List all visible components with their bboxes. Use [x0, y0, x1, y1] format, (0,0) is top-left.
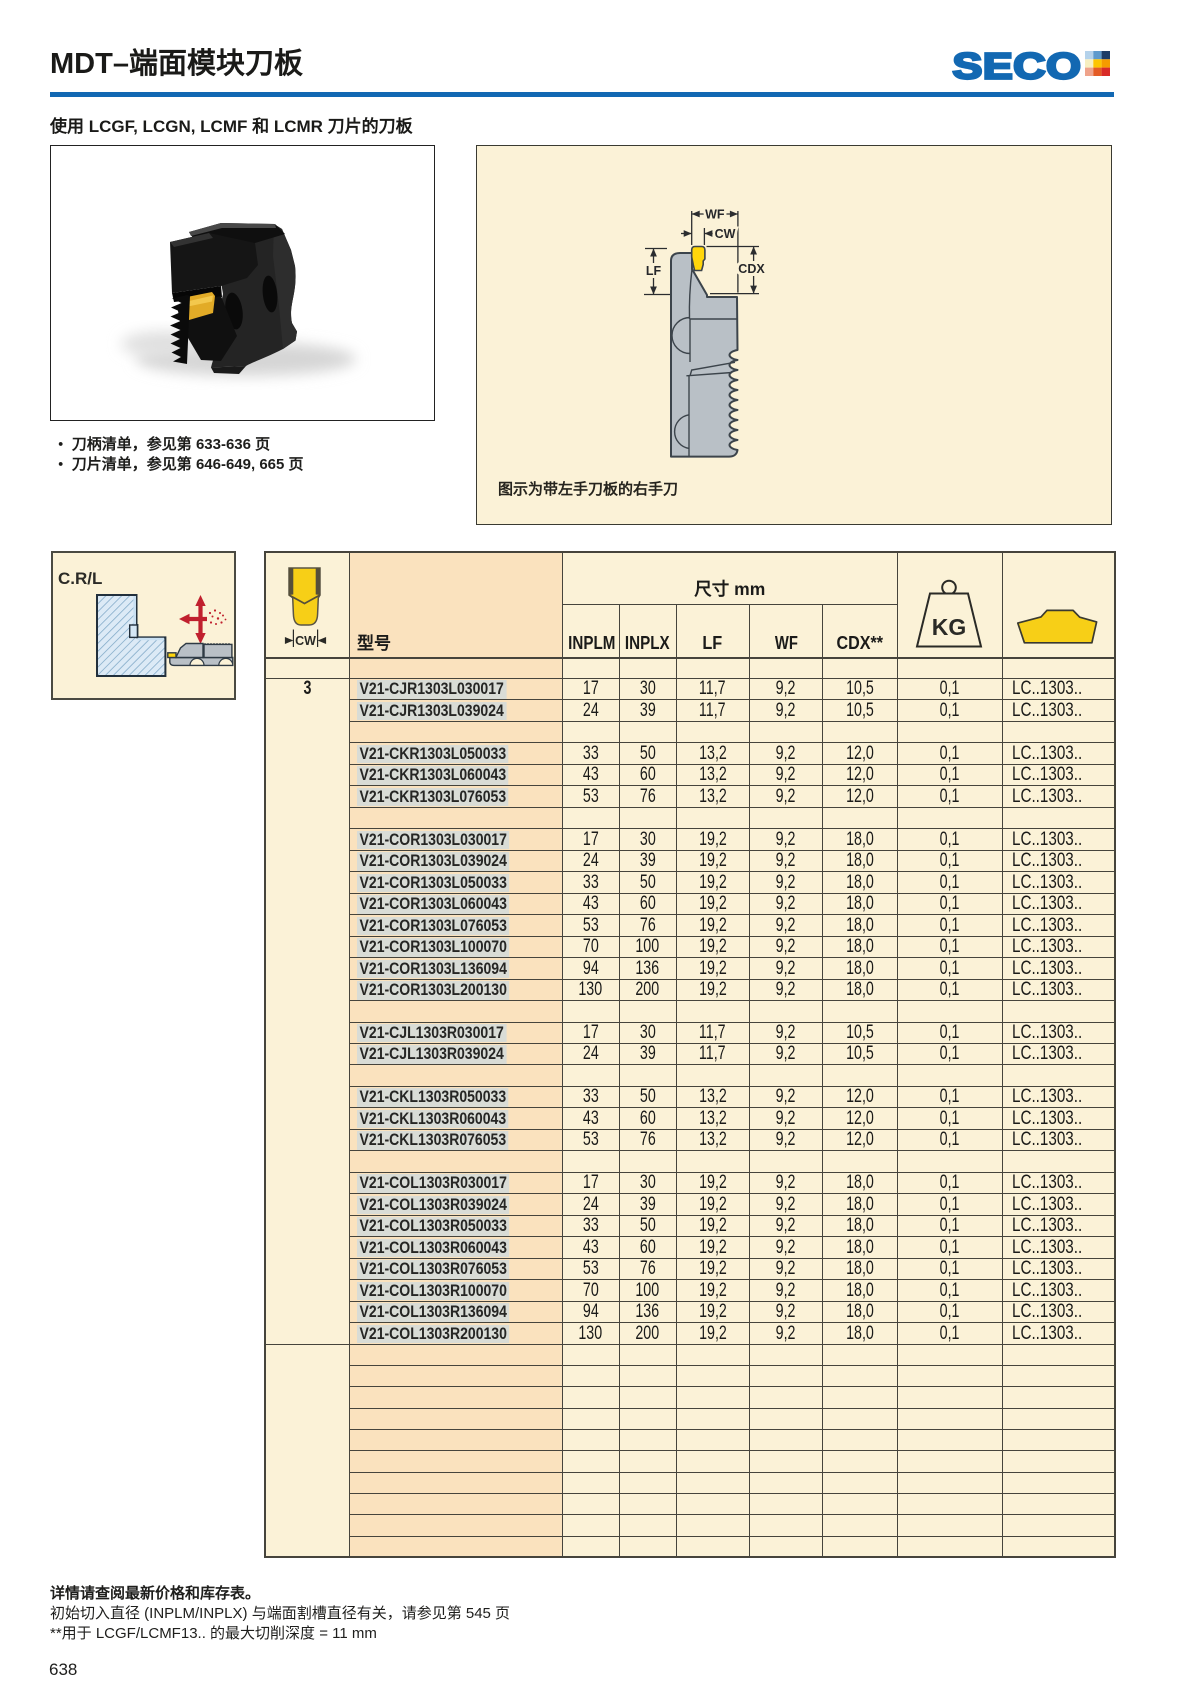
svg-text:SECO: SECO: [952, 45, 1081, 86]
svg-text:图示为带左手刀板的右手刀: 图示为带左手刀板的右手刀: [498, 480, 678, 498]
svg-text:CW: CW: [295, 634, 316, 648]
svg-text:CDX: CDX: [738, 262, 765, 276]
svg-text:WF: WF: [705, 208, 725, 222]
svg-text:LF: LF: [646, 264, 662, 278]
svg-text:CW: CW: [715, 227, 736, 241]
svg-text:KG: KG: [932, 614, 967, 640]
